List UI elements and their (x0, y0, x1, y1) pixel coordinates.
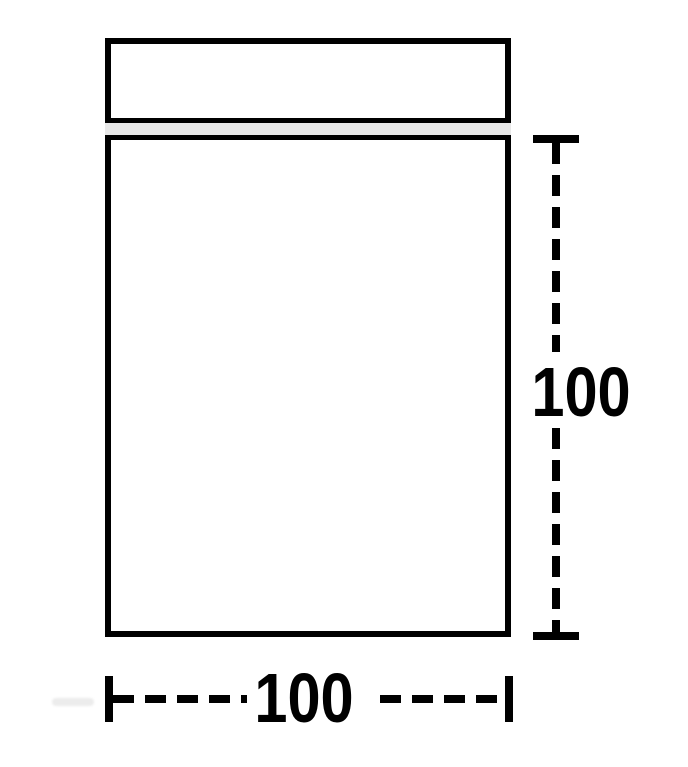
height-dimension-value: 100 (531, 357, 630, 427)
width-dimension-value: 100 (254, 663, 353, 733)
height-dimension-label: 100 (523, 357, 640, 427)
zipper-seal-strip (105, 118, 511, 140)
width-dimension-label: 100 (246, 663, 363, 733)
watermark-smudge (52, 698, 94, 706)
diagram-canvas: 100 100 (0, 0, 688, 767)
